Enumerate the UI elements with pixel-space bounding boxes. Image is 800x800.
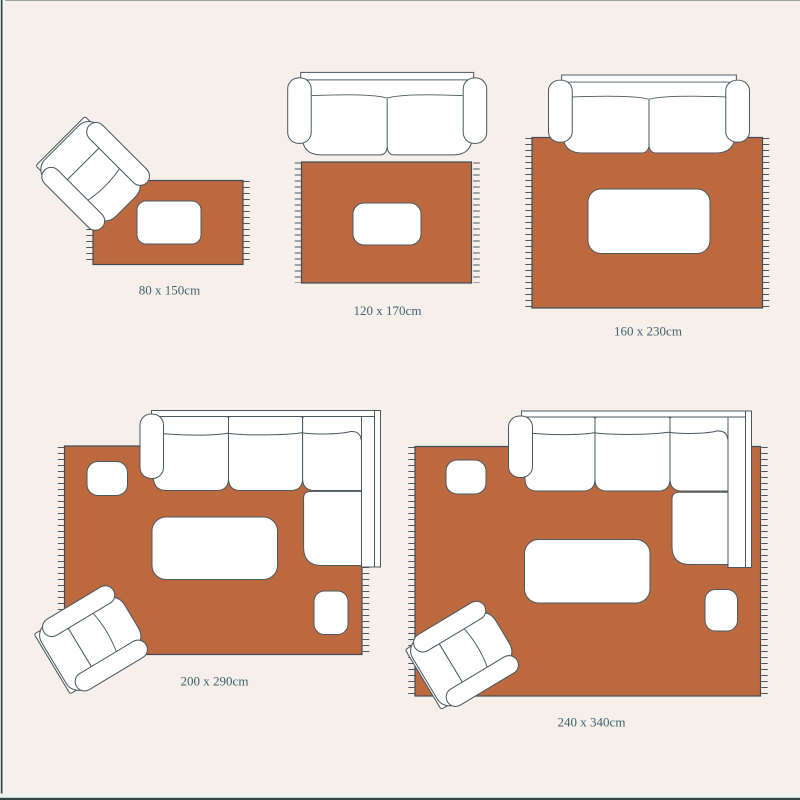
svg-text:200 x 290cm: 200 x 290cm [181, 674, 249, 689]
svg-text:120 x 170cm: 120 x 170cm [354, 303, 422, 318]
svg-text:80 x 150cm: 80 x 150cm [139, 283, 200, 298]
svg-text:160 x 230cm: 160 x 230cm [614, 324, 682, 339]
svg-text:240 x 340cm: 240 x 340cm [558, 714, 626, 729]
